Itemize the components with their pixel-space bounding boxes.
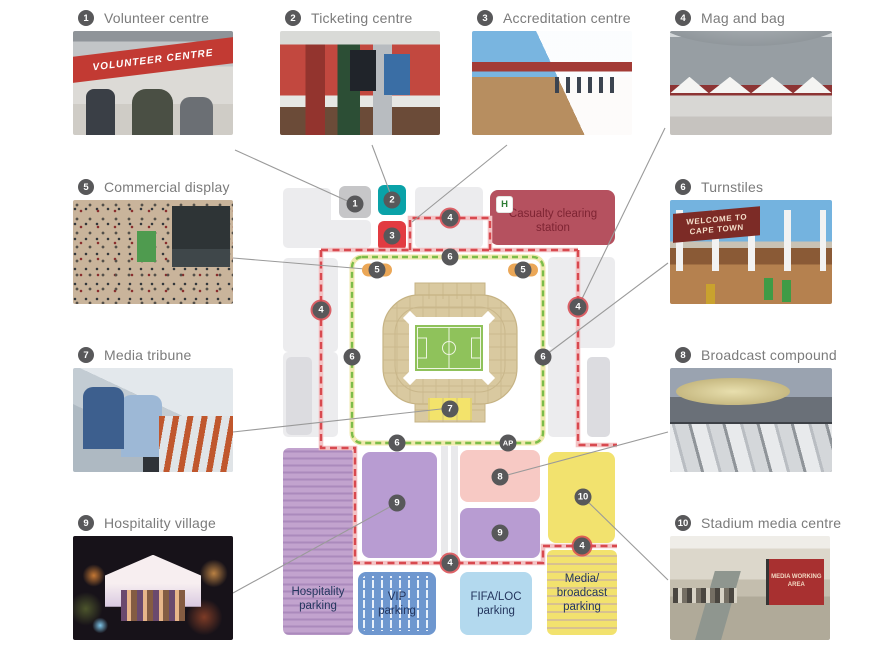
legend-card-broadcast-compound: 8 Broadcast compound (670, 346, 832, 472)
map-marker-6-right: 6 (535, 349, 552, 366)
map-marker-9-a: 9 (389, 495, 406, 512)
map-marker-4-left: 4 (313, 302, 330, 319)
map-marker-4-right: 4 (570, 299, 587, 316)
building-left-upper (283, 258, 338, 352)
legend-caption: 7 Media tribune (73, 346, 233, 364)
photo-commercial-display (73, 200, 233, 304)
map-marker-3: 3 (384, 228, 401, 245)
vip-parking-label: VIP parking (358, 590, 436, 618)
map-marker-6-bottom: 6 (389, 435, 406, 452)
building-right-lower-dark (587, 357, 610, 437)
number-badge-9: 9 (78, 515, 94, 531)
number-badge-3: 3 (477, 10, 493, 26)
welcome-banner: WELCOME TO CAPE TOWN (673, 207, 760, 244)
legend-card-commercial-display: 5 Commercial display (73, 178, 233, 304)
photo-accreditation-centre (472, 31, 632, 135)
hospitality-parking-label: Hospitality parking (283, 585, 353, 613)
photo-ticketing-centre (280, 31, 440, 135)
legend-caption: 1 Volunteer centre (73, 9, 233, 27)
number-badge-4: 4 (675, 10, 691, 26)
number-badge-7: 7 (78, 347, 94, 363)
caption-label: Turnstiles (701, 179, 763, 195)
number-badge-10: 10 (675, 515, 691, 531)
photo-broadcast-compound (670, 368, 832, 472)
number-badge-2: 2 (285, 10, 301, 26)
map-marker-6-left: 6 (344, 349, 361, 366)
legend-card-accreditation-centre: 3 Accreditation centre (472, 9, 632, 135)
casualty-clearing-station-label: Casualty clearing station (498, 207, 608, 236)
map-marker-1: 1 (347, 196, 364, 213)
legend-caption: 5 Commercial display (73, 178, 233, 196)
stadium-precinct-infographic: 1 Volunteer centre VOLUNTEER CENTRE 2 Ti… (0, 0, 887, 648)
legend-card-media-tribune: 7 Media tribune (73, 346, 233, 472)
hospital-icon: H (496, 196, 513, 213)
number-badge-6: 6 (675, 179, 691, 195)
legend-caption: 6 Turnstiles (670, 178, 832, 196)
building-right-lower (548, 348, 578, 437)
caption-label: Commercial display (104, 179, 230, 195)
caption-label: Volunteer centre (104, 10, 209, 26)
caption-label: Hospitality village (104, 515, 216, 531)
caption-label: Ticketing centre (311, 10, 413, 26)
legend-caption: 8 Broadcast compound (670, 346, 832, 364)
legend-card-volunteer-centre: 1 Volunteer centre VOLUNTEER CENTRE (73, 9, 233, 135)
map-marker-7: 7 (442, 401, 459, 418)
legend-caption: 2 Ticketing centre (280, 9, 440, 27)
map-marker-4-top: 4 (442, 210, 459, 227)
caption-label: Mag and bag (701, 10, 785, 26)
legend-caption: 9 Hospitality village (73, 514, 233, 532)
map-marker-5-right: 5 (515, 262, 532, 279)
legend-caption: 3 Accreditation centre (472, 9, 632, 27)
legend-card-turnstiles: 6 Turnstiles WELCOME TO CAPE TOWN (670, 178, 832, 304)
map-marker-10: 10 (575, 489, 592, 506)
map-marker-9-b: 9 (492, 525, 509, 542)
legend-caption: 4 Mag and bag (670, 9, 832, 27)
number-badge-1: 1 (78, 10, 94, 26)
legend-caption: 10 Stadium media centre (670, 514, 832, 532)
media-broadcast-parking-label: Media/ broadcast parking (547, 572, 617, 614)
caption-label: Broadcast compound (701, 347, 837, 363)
access-road (441, 446, 458, 556)
photo-mag-and-bag (670, 31, 832, 135)
map-marker-4-bottom: 4 (442, 555, 459, 572)
fifa-loc-parking-label: FIFA/LOC parking (460, 590, 532, 618)
media-working-area-sign: MEDIA WORKING AREA (766, 559, 824, 605)
photo-turnstiles: WELCOME TO CAPE TOWN (670, 200, 832, 304)
volunteer-banner: VOLUNTEER CENTRE (73, 37, 233, 84)
legend-card-ticketing-centre: 2 Ticketing centre (280, 9, 440, 135)
building-topleft-wing (318, 220, 371, 248)
caption-label: Stadium media centre (701, 515, 841, 531)
number-badge-8: 8 (675, 347, 691, 363)
caption-label: Accreditation centre (503, 10, 631, 26)
caption-label: Media tribune (104, 347, 191, 363)
map-marker-2: 2 (384, 192, 401, 209)
photo-hospitality-village (73, 536, 233, 640)
map-marker-6-top: 6 (442, 249, 459, 266)
legend-card-stadium-media-centre: 10 Stadium media centre MEDIA WORKING AR… (670, 514, 832, 640)
number-badge-5: 5 (78, 179, 94, 195)
photo-volunteer-centre: VOLUNTEER CENTRE (73, 31, 233, 135)
legend-card-mag-and-bag: 4 Mag and bag (670, 9, 832, 135)
photo-stadium-media-centre: MEDIA WORKING AREA (670, 536, 830, 640)
map-marker-8: 8 (492, 469, 509, 486)
legend-card-hospitality-village: 9 Hospitality village (73, 514, 233, 640)
photo-media-tribune (73, 368, 233, 472)
map-marker-5-left: 5 (369, 262, 386, 279)
map-marker-ap: AP (500, 435, 517, 452)
map-marker-4-bottomright: 4 (574, 538, 591, 555)
